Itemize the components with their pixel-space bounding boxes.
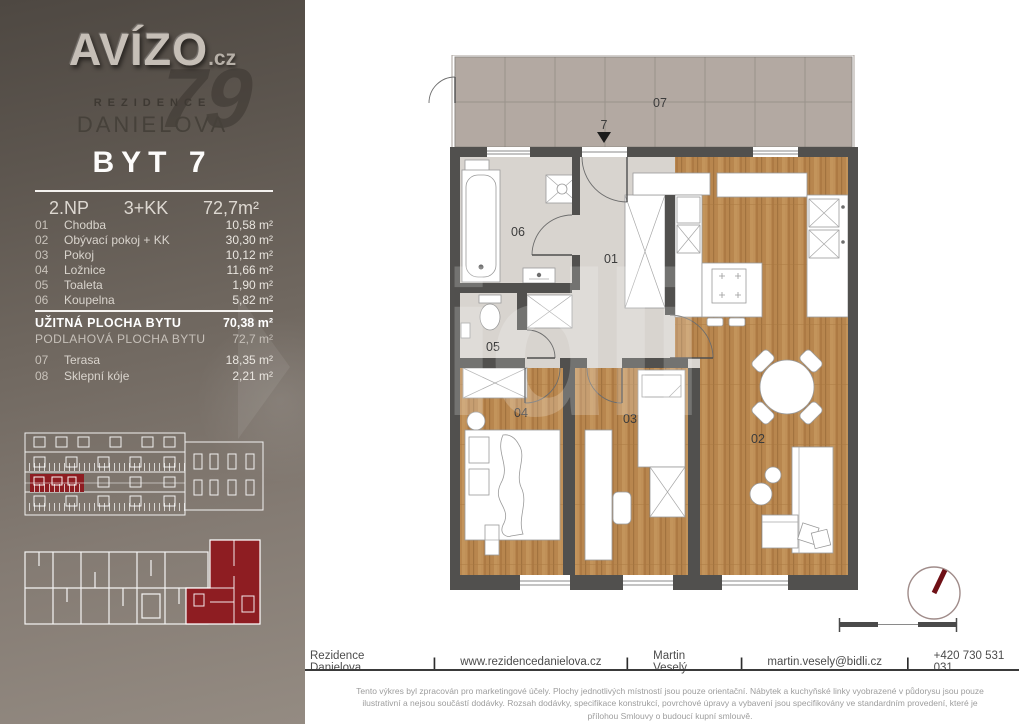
room3-label: 03 (623, 412, 637, 426)
usable-area-row: UŽITNÁ PLOCHA BYTU 70,38 m² (35, 316, 273, 330)
entrance-unit-label: 7 (601, 118, 608, 132)
logo-text: AVÍZO (69, 24, 208, 75)
pillow (469, 437, 489, 463)
title-divider (35, 190, 273, 192)
room-name: Ložnice (64, 263, 227, 277)
room-area: 2,21 m² (232, 369, 273, 383)
living-label: 02 (751, 432, 765, 446)
dining-set (750, 348, 823, 425)
coffee-table (750, 483, 772, 505)
bathroom-label: 06 (511, 225, 525, 239)
usable-area-label: UŽITNÁ PLOCHA BYTU (35, 316, 223, 330)
footer-divider (305, 669, 1019, 671)
window (722, 575, 788, 590)
disclaimer-text: Tento výkres byl zpracován pro marketing… (332, 685, 1008, 722)
room-area: 18,35 m² (226, 353, 273, 367)
sink-vanity (523, 268, 555, 283)
room-name: Terasa (64, 353, 226, 367)
side-table (765, 467, 781, 483)
usable-area-value: 70,38 m² (223, 316, 273, 330)
room-num: 02 (35, 233, 64, 247)
residence-label: REZIDENCE (0, 97, 305, 109)
fridge (677, 197, 700, 223)
room-num: 08 (35, 369, 64, 383)
dining-table (760, 360, 814, 414)
wc-tank (479, 295, 501, 303)
terrace-label: 07 (653, 96, 667, 110)
footer-separator: | (740, 655, 744, 670)
unit-disposition: 3+KK (124, 198, 169, 219)
window (487, 147, 530, 157)
project-name: DANIELOVA (0, 112, 305, 138)
table-row: 08 Sklepní kóje 2,21 m² (35, 369, 273, 385)
entry-cabinet (633, 173, 710, 195)
room-area: 30,30 m² (226, 233, 273, 247)
disclaimer-line: Tento výkres byl zpracován pro marketing… (332, 685, 1008, 697)
room-area: 10,58 m² (226, 218, 273, 232)
table-row: 05 Toaleta 1,90 m² (35, 278, 273, 293)
entrance-door (582, 147, 627, 157)
kitchen-counter-top (717, 173, 807, 197)
building-elevation-drawing (22, 430, 266, 522)
nightstand (485, 525, 499, 555)
pillow (469, 469, 489, 495)
unit-area: 72,7m² (203, 198, 259, 219)
cushion (811, 529, 830, 548)
desk-chair (613, 492, 631, 524)
footer-separator: | (906, 655, 910, 670)
room-name: Sklepní kóje (64, 369, 232, 383)
room-table: 01 Chodba 10,58 m² 02 Obývací pokoj + KK… (35, 218, 273, 308)
hall-cabinet (527, 295, 572, 328)
footer-website: www.rezidencedanielova.cz (460, 656, 601, 668)
room-area: 5,82 m² (232, 293, 273, 307)
table-row: 01 Chodba 10,58 m² (35, 218, 273, 233)
room-num: 06 (35, 293, 64, 307)
floor-area-row: PODLAHOVÁ PLOCHA BYTU 72,7 m² (35, 332, 273, 346)
room-name: Toaleta (64, 278, 232, 292)
compass-needle (934, 570, 945, 593)
room-area: 11,66 m² (227, 263, 273, 277)
disclaimer-line: ilustrativní a nejsou součástí dodávky. … (332, 697, 1008, 709)
table-row: 02 Obývací pokoj + KK 30,30 m² (35, 233, 273, 248)
floor-plan: 07 7 (425, 55, 865, 595)
flyer-page: 79 AVÍZO.cz REZIDENCE DANIELOVA BYT 7 2.… (0, 0, 1024, 724)
room-num: 01 (35, 218, 64, 232)
bar-stool (729, 318, 745, 326)
kitchen-appliance (677, 225, 700, 253)
kitchen-island (702, 263, 762, 317)
floor-area-value: 72,7 m² (232, 332, 273, 346)
table-row: 07 Terasa 18,35 m² (35, 353, 273, 369)
hall-wardrobe (625, 195, 665, 308)
footer-separator: | (626, 655, 630, 670)
bar-stool (707, 318, 723, 326)
key-plan-drawing (22, 536, 266, 630)
room-name: Koupelna (64, 293, 232, 307)
window (623, 575, 673, 590)
room-num: 07 (35, 353, 64, 367)
bathtub (462, 170, 500, 282)
extras-table: 07 Terasa 18,35 m² 08 Sklepní kóje 2,21 … (35, 353, 273, 385)
table-row: 03 Pokoj 10,12 m² (35, 248, 273, 263)
bedroom-label: 04 (514, 406, 528, 420)
hall-label: 01 (604, 252, 618, 266)
room-num: 03 (35, 248, 64, 262)
unit-title: BYT 7 (0, 146, 305, 180)
window (520, 575, 570, 590)
footer-separator: | (433, 655, 437, 670)
room-area: 1,90 m² (232, 278, 273, 292)
single-bed (638, 370, 685, 467)
toilet-label: 05 (486, 340, 500, 354)
disclaimer-line: přílohou Smlouvy o budoucí kupní smlouvě… (332, 710, 1008, 722)
double-bed (465, 430, 560, 540)
floor-lamp (467, 412, 485, 430)
scale-bar (838, 617, 958, 635)
room-area: 10,12 m² (226, 248, 273, 262)
room-name: Pokoj (64, 248, 226, 262)
summary-divider (35, 310, 273, 312)
logo-tld: .cz (208, 47, 236, 70)
wc-bowl (480, 304, 500, 330)
footer-email: martin.vesely@bidli.cz (767, 656, 882, 668)
table-row: 06 Koupelna 5,82 m² (35, 293, 273, 308)
room-num: 05 (35, 278, 64, 292)
desk (585, 430, 612, 560)
room-name: Chodba (64, 218, 226, 232)
floor-area-label: PODLAHOVÁ PLOCHA BYTU (35, 332, 232, 346)
room-name: Obývací pokoj + KK (64, 233, 226, 247)
room-num: 04 (35, 263, 64, 277)
sidebar: 79 AVÍZO.cz REZIDENCE DANIELOVA BYT 7 2.… (0, 0, 305, 724)
unit-specs: 2.NP 3+KK 72,7m² (35, 198, 273, 219)
window (753, 147, 798, 157)
logo: 79 AVÍZO.cz (0, 24, 305, 76)
table-row: 04 Ložnice 11,66 m² (35, 263, 273, 278)
bedroom-wardrobe (463, 368, 527, 398)
unit-floor: 2.NP (49, 198, 89, 219)
terrace: 07 7 (429, 55, 854, 149)
room3-wardrobe (650, 467, 685, 517)
small-sink (461, 323, 470, 338)
